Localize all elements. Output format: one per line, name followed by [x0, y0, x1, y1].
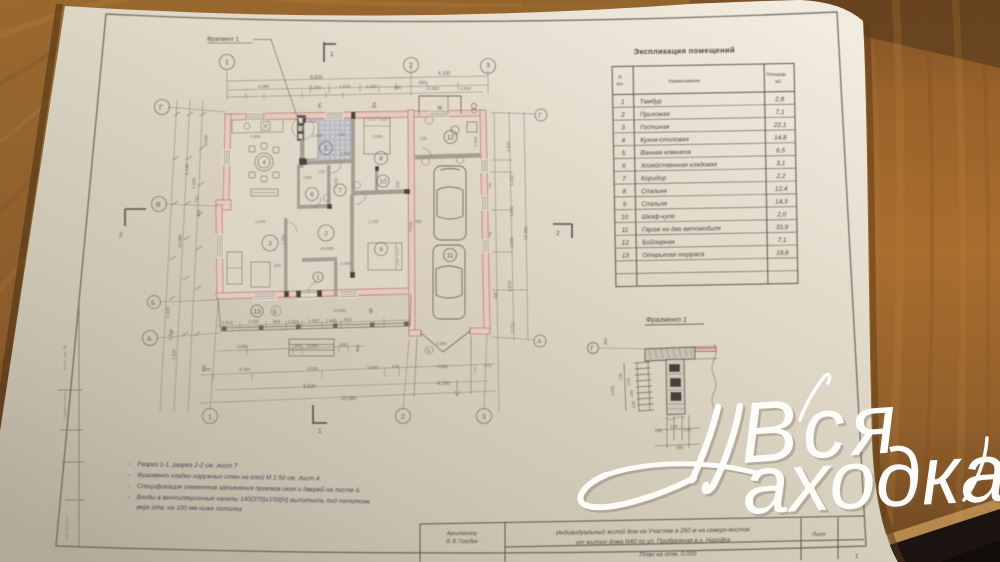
svg-text:33,9: 33,9	[776, 224, 789, 231]
svg-text:Д: Д	[372, 103, 376, 109]
svg-text:N: N	[618, 74, 621, 79]
svg-text:6,5: 6,5	[776, 147, 785, 154]
svg-text:7: 7	[622, 176, 626, 183]
svg-text:6: 6	[622, 163, 626, 170]
svg-text:18,8: 18,8	[776, 250, 789, 257]
svg-text:Фрагмент 1: Фрагмент 1	[646, 317, 687, 324]
svg-text:Хозяйственная кладовая: Хозяйственная кладовая	[640, 160, 718, 169]
svg-text:270: 270	[626, 377, 631, 385]
svg-text:1.410: 1.410	[308, 318, 320, 323]
svg-text:Спальня: Спальня	[641, 201, 667, 208]
svg-text:4.390: 4.390	[258, 84, 270, 89]
svg-text:130: 130	[420, 136, 428, 141]
svg-text:800: 800	[273, 319, 281, 324]
svg-text:-: -	[128, 461, 130, 468]
svg-text:Шкаф-купе: Шкаф-купе	[642, 213, 676, 221]
svg-text:1: 1	[318, 428, 322, 435]
svg-text:3: 3	[268, 241, 272, 248]
svg-text:Архитектор: Архитектор	[446, 531, 477, 537]
svg-text:Лист: Лист	[811, 532, 826, 538]
svg-text:2.420: 2.420	[191, 177, 197, 189]
svg-text:-: -	[128, 472, 130, 479]
svg-text:-: -	[128, 494, 130, 501]
svg-text:2.420: 2.420	[165, 306, 171, 318]
svg-text:120: 120	[655, 428, 663, 433]
svg-text:Ж: Ж	[437, 106, 443, 112]
svg-text:3.000: 3.000	[473, 136, 478, 147]
svg-text:1: 1	[855, 554, 858, 560]
svg-text:5: 5	[622, 150, 626, 157]
svg-text:2.970: 2.970	[506, 140, 511, 152]
svg-text:13: 13	[622, 252, 630, 259]
svg-text:3.510: 3.510	[307, 366, 319, 371]
svg-text:Наименование: Наименование	[668, 78, 700, 84]
svg-text:Б: Б	[151, 300, 155, 307]
svg-text:Прихожая: Прихожая	[640, 111, 670, 119]
svg-text:130: 130	[618, 372, 623, 380]
svg-text:-0.040: -0.040	[333, 308, 346, 313]
svg-text:200: 200	[294, 343, 302, 348]
svg-text:12: 12	[622, 240, 630, 247]
svg-text:1.000: 1.000	[509, 236, 514, 248]
svg-text:9.060: 9.060	[408, 221, 413, 232]
svg-text:2: 2	[556, 230, 560, 237]
svg-text:1.020: 1.020	[366, 84, 378, 89]
svg-text:2: 2	[401, 414, 405, 421]
svg-text:3.790: 3.790	[239, 367, 251, 372]
svg-text:Коридор: Коридор	[641, 174, 667, 182]
svg-text:380: 380	[676, 445, 684, 450]
svg-text:11: 11	[447, 253, 454, 260]
svg-text:А: А	[147, 336, 152, 343]
svg-text:Ванная комната: Ванная комната	[641, 149, 692, 157]
svg-text:В. В. Голубев: В. В. Голубев	[447, 539, 478, 545]
svg-text:1.020: 1.020	[509, 205, 514, 217]
svg-text:2: 2	[324, 231, 328, 238]
svg-text:Кухня-столовая: Кухня-столовая	[640, 136, 689, 144]
svg-text:3.000: 3.000	[367, 365, 379, 370]
svg-text:2,2: 2,2	[776, 173, 786, 180]
svg-text:6: 6	[310, 192, 314, 199]
svg-text:1.910: 1.910	[222, 320, 234, 325]
svg-text:10: 10	[379, 179, 387, 186]
svg-text:900: 900	[394, 85, 402, 90]
svg-text:Инв. № подл.: Инв. № подл.	[64, 515, 69, 540]
svg-text:1.610: 1.610	[339, 84, 351, 89]
svg-text:Подпись и дата: Подпись и дата	[62, 390, 67, 420]
svg-text:9: 9	[623, 201, 627, 208]
svg-text:120: 120	[338, 132, 346, 137]
svg-text:6.130: 6.130	[184, 163, 190, 175]
svg-text:4.150: 4.150	[438, 71, 451, 77]
svg-text:120: 120	[631, 400, 636, 408]
svg-text:Площадь: Площадь	[766, 72, 787, 77]
svg-text:3.060: 3.060	[372, 134, 383, 139]
svg-text:14,8: 14,8	[774, 134, 787, 141]
svg-text:5: 5	[427, 349, 430, 355]
svg-text:125: 125	[684, 427, 692, 432]
svg-text:1.810: 1.810	[288, 319, 300, 324]
svg-text:2.000: 2.000	[333, 177, 339, 188]
svg-text:3.200: 3.200	[255, 219, 266, 224]
svg-text:120: 120	[318, 169, 326, 174]
svg-text:675: 675	[392, 364, 400, 369]
svg-text:Е: Е	[318, 104, 322, 110]
svg-text:1.360: 1.360	[280, 234, 286, 245]
svg-text:Экспликация помещений: Экспликация помещений	[634, 45, 735, 56]
svg-text:810: 810	[344, 317, 352, 322]
svg-text:1.620: 1.620	[428, 86, 440, 91]
svg-text:аходка: аходка	[740, 425, 1000, 532]
svg-text:2.000: 2.000	[307, 343, 319, 348]
svg-text:2,8: 2,8	[774, 96, 784, 103]
svg-text:3.980: 3.980	[436, 341, 447, 346]
svg-text:п/п: п/п	[616, 81, 623, 86]
svg-text:7: 7	[338, 188, 342, 195]
svg-text:1: 1	[316, 275, 320, 282]
svg-text:13.980: 13.980	[341, 396, 357, 402]
svg-text:13: 13	[253, 309, 261, 316]
svg-text:1.823: 1.823	[507, 280, 512, 292]
svg-text:7,1: 7,1	[778, 237, 787, 244]
svg-text:2.180: 2.180	[368, 219, 379, 224]
svg-text:4.150: 4.150	[437, 381, 450, 387]
svg-text:675: 675	[484, 363, 492, 368]
svg-text:Гараж на два автомобиля: Гараж на два автомобиля	[642, 224, 721, 233]
svg-text:-: -	[128, 483, 130, 490]
svg-text:2.212: 2.212	[510, 321, 515, 333]
svg-text:600: 600	[419, 80, 427, 85]
svg-text:3: 3	[486, 63, 490, 70]
svg-text:12,4: 12,4	[775, 186, 788, 193]
svg-text:±0.000: ±0.000	[320, 246, 334, 251]
svg-text:4: 4	[262, 160, 266, 167]
svg-text:2: 2	[620, 112, 625, 119]
svg-text:2: 2	[409, 63, 413, 70]
svg-text:100: 100	[203, 367, 211, 372]
svg-text:8: 8	[622, 188, 626, 195]
svg-text:8: 8	[379, 156, 383, 163]
svg-text:10: 10	[621, 214, 629, 221]
svg-text:9.800: 9.800	[310, 75, 323, 81]
svg-text:4: 4	[622, 137, 626, 144]
svg-text:10.060: 10.060	[177, 234, 183, 248]
svg-text:900: 900	[355, 344, 360, 352]
svg-text:7,1: 7,1	[775, 109, 784, 116]
svg-text:Фрагмент 1: Фрагмент 1	[207, 37, 240, 43]
svg-text:1: 1	[225, 60, 229, 67]
svg-text:В: В	[156, 202, 161, 209]
svg-text:9.600: 9.600	[303, 384, 316, 390]
svg-text:1: 1	[208, 414, 212, 421]
svg-text:1.810: 1.810	[171, 348, 177, 360]
svg-text:500: 500	[493, 291, 498, 299]
svg-text:2.420: 2.420	[248, 319, 260, 324]
svg-text:Взам. инв. №: Взам. инв. №	[62, 345, 67, 370]
svg-text:1: 1	[330, 51, 334, 58]
svg-text:3.060: 3.060	[340, 151, 351, 156]
svg-text:2.400: 2.400	[312, 133, 323, 138]
svg-text:1400: 1400	[303, 175, 313, 180]
svg-text:3,1: 3,1	[776, 160, 785, 167]
svg-text:3.880: 3.880	[250, 134, 261, 139]
svg-text:200: 200	[340, 342, 348, 347]
svg-text:3: 3	[621, 124, 625, 131]
svg-text:В: В	[369, 309, 373, 315]
svg-text:м2: м2	[775, 79, 781, 84]
svg-text:1.920: 1.920	[509, 174, 514, 186]
svg-text:1.840: 1.840	[326, 318, 338, 323]
svg-text:План на отм. 0,000: План на отм. 0,000	[640, 550, 697, 558]
svg-text:3: 3	[482, 414, 486, 421]
svg-text:1.040: 1.040	[610, 385, 615, 396]
svg-text:11: 11	[622, 227, 629, 234]
svg-text:1.020: 1.020	[310, 85, 322, 90]
svg-text:1.910: 1.910	[460, 86, 472, 91]
svg-text:Бойлерная: Бойлерная	[642, 238, 675, 247]
svg-text:2.080: 2.080	[340, 261, 351, 266]
svg-text:3.000: 3.000	[203, 134, 209, 146]
svg-text:Спальня: Спальня	[641, 188, 667, 195]
svg-text:600: 600	[274, 263, 282, 268]
svg-text:9: 9	[379, 247, 383, 254]
svg-text:900: 900	[395, 180, 400, 188]
svg-text:22,1: 22,1	[773, 122, 787, 129]
svg-text:2.830: 2.830	[437, 364, 449, 369]
svg-text:140: 140	[629, 389, 634, 397]
svg-text:710: 710	[194, 195, 199, 203]
svg-text:Г: Г	[159, 105, 163, 112]
svg-text:1: 1	[621, 99, 625, 106]
svg-text:300: 300	[603, 337, 608, 345]
svg-text:Тамбур: Тамбур	[640, 97, 662, 105]
svg-text:Гостиная: Гостиная	[640, 124, 670, 132]
svg-text:3.890: 3.890	[237, 344, 249, 349]
svg-text:14,3: 14,3	[775, 198, 788, 205]
svg-text:12: 12	[447, 135, 455, 142]
svg-text:Открытая терраса: Открытая терраса	[642, 251, 704, 259]
svg-text:2,0: 2,0	[776, 211, 786, 218]
svg-text:12.180: 12.180	[523, 226, 528, 240]
svg-text:400: 400	[196, 209, 201, 217]
svg-text:А: А	[538, 340, 542, 346]
svg-text:5: 5	[324, 146, 328, 153]
svg-text:140: 140	[670, 424, 678, 429]
svg-text:2: 2	[119, 232, 123, 239]
svg-text:400: 400	[415, 219, 423, 224]
